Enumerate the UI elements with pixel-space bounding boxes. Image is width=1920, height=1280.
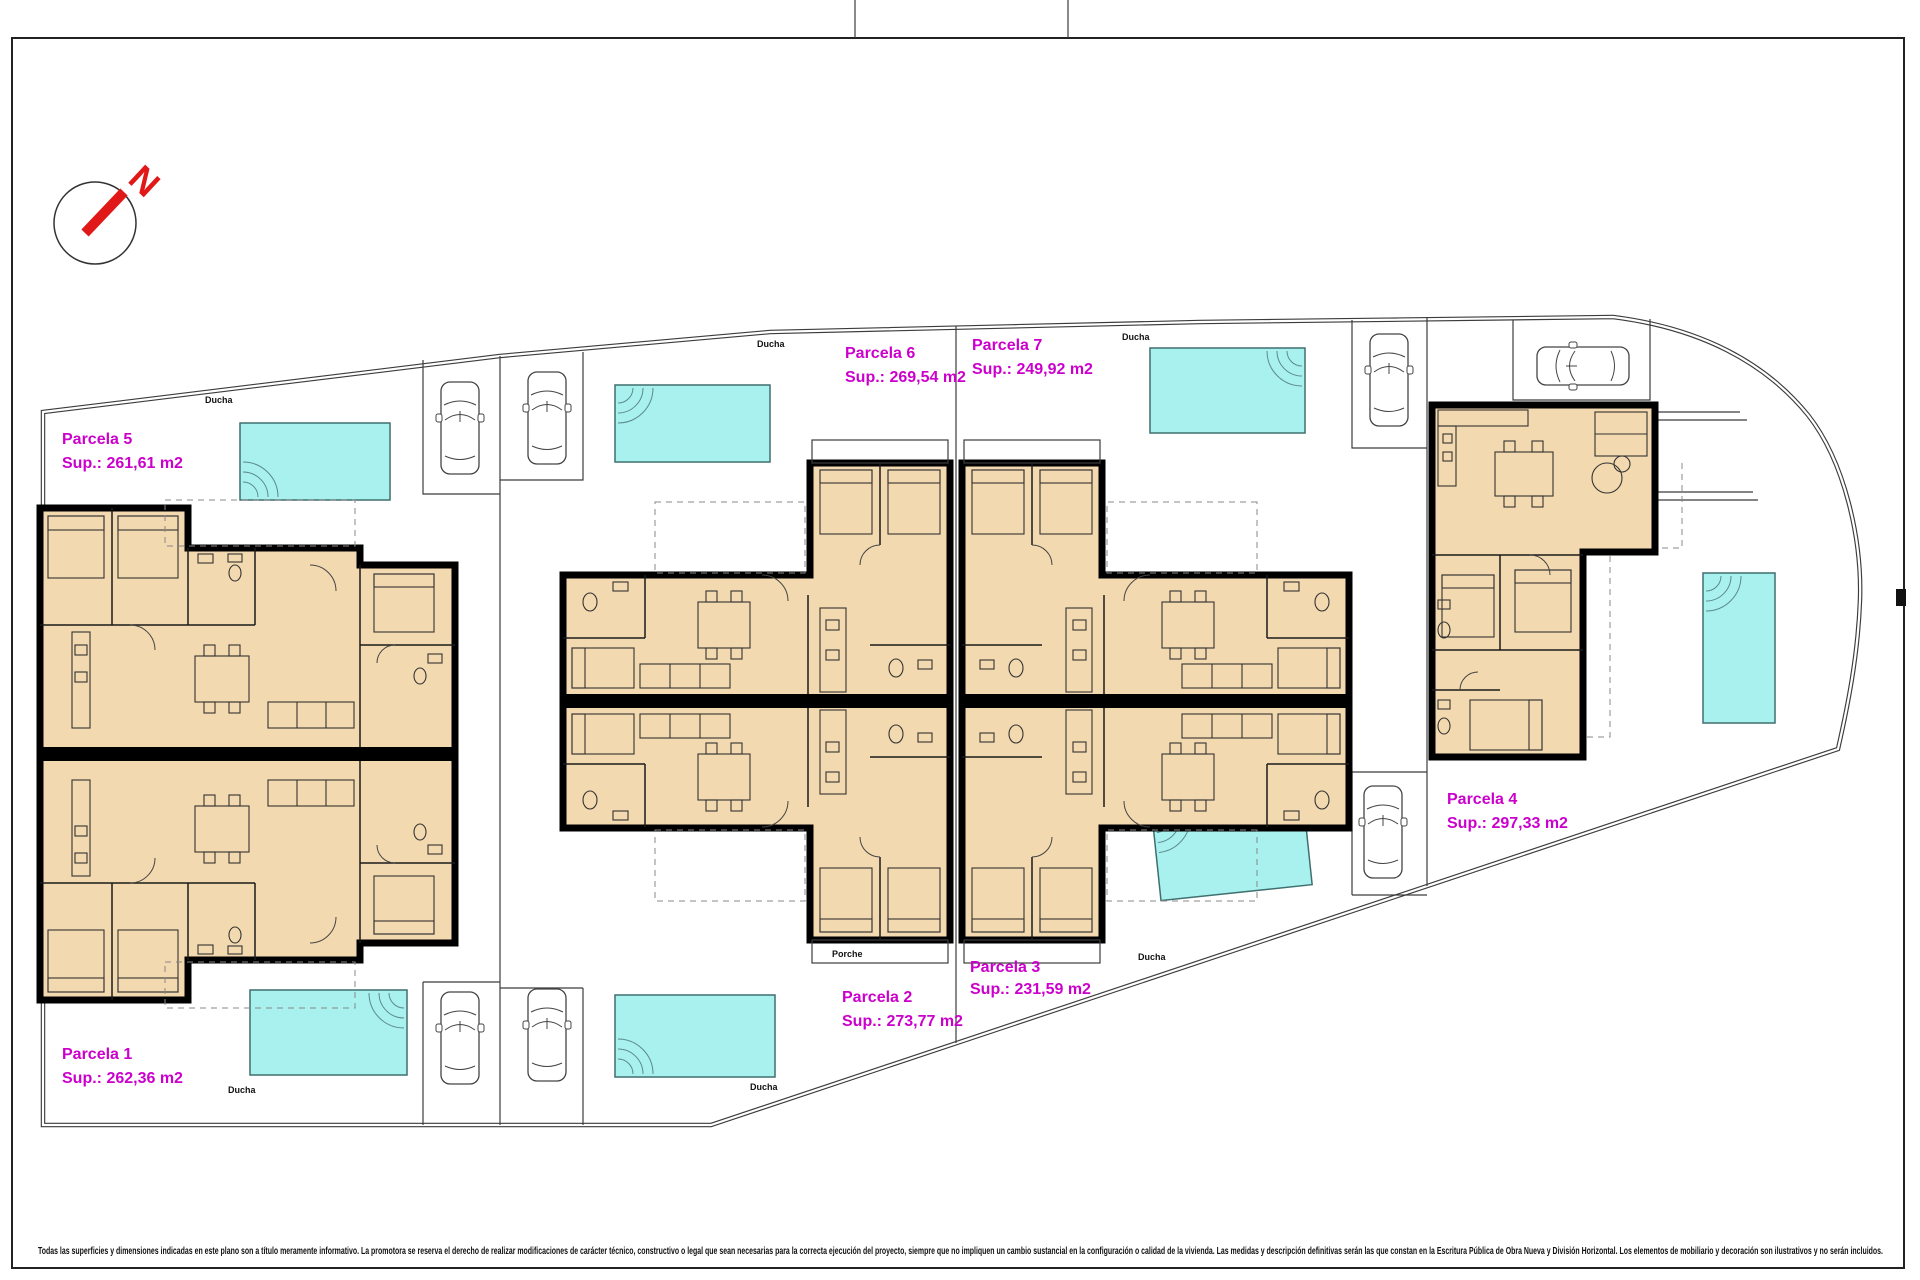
site-plan-drawing: N bbox=[0, 0, 1920, 1280]
porche-label: Porche bbox=[832, 949, 863, 959]
building-parcelas-5-1 bbox=[40, 500, 455, 1008]
north-arrow-bar-icon bbox=[85, 192, 124, 233]
building-parcela-4 bbox=[1432, 405, 1655, 757]
parcela-2-label: Parcela 2 Sup.: 273,77 m2 bbox=[842, 989, 963, 1030]
border-mark bbox=[1896, 589, 1906, 606]
ducha-label: Ducha bbox=[228, 1085, 257, 1095]
north-arrow: N bbox=[54, 157, 168, 264]
building-parcelas-6-2 bbox=[563, 440, 950, 963]
car-icon bbox=[523, 989, 571, 1081]
ducha-label: Ducha bbox=[757, 339, 786, 349]
parcela-4-label: Parcela 4 Sup.: 297,33 m2 bbox=[1447, 791, 1568, 832]
svg-text:Sup.: 261,61 m2: Sup.: 261,61 m2 bbox=[62, 455, 183, 472]
svg-text:Parcela 4: Parcela 4 bbox=[1447, 791, 1517, 808]
pool-parcela-5 bbox=[240, 423, 390, 500]
ducha-label: Ducha bbox=[750, 1082, 779, 1092]
pool-parcela-7 bbox=[1150, 348, 1305, 433]
pool-parcela-1 bbox=[250, 990, 407, 1075]
pool-parcela-4 bbox=[1703, 573, 1775, 723]
parcela-6-label: Parcela 6 Sup.: 269,54 m2 bbox=[845, 345, 966, 386]
ducha-label: Ducha bbox=[1122, 332, 1151, 342]
site-plan-page: N bbox=[0, 0, 1920, 1280]
parcela-1-label: Parcela 1 Sup.: 262,36 m2 bbox=[62, 1046, 183, 1087]
car-icon bbox=[1537, 342, 1629, 390]
car-icon bbox=[1359, 786, 1407, 878]
building-footprint bbox=[1432, 405, 1655, 757]
car-icon bbox=[436, 382, 484, 474]
car-icon bbox=[1365, 334, 1413, 426]
ducha-label: Ducha bbox=[1138, 952, 1167, 962]
disclaimer-text: Todas las superficies y dimensiones indi… bbox=[38, 1245, 1883, 1257]
parcela-5-label: Parcela 5 Sup.: 261,61 m2 bbox=[62, 431, 183, 472]
svg-text:Sup.: 269,54 m2: Sup.: 269,54 m2 bbox=[845, 369, 966, 386]
parcela-7-label: Parcela 7 Sup.: 249,92 m2 bbox=[972, 337, 1093, 378]
ducha-label: Ducha bbox=[205, 395, 234, 405]
svg-text:Sup.: 262,36 m2: Sup.: 262,36 m2 bbox=[62, 1070, 183, 1087]
pool-parcela-2 bbox=[615, 995, 775, 1077]
svg-text:Sup.: 249,92 m2: Sup.: 249,92 m2 bbox=[972, 361, 1093, 378]
svg-text:Parcela 7: Parcela 7 bbox=[972, 337, 1042, 354]
svg-text:Parcela 3: Parcela 3 bbox=[970, 959, 1040, 976]
svg-text:Sup.: 231,59 m2: Sup.: 231,59 m2 bbox=[970, 981, 1091, 998]
pool-parcela-6 bbox=[615, 385, 770, 462]
svg-text:Parcela 5: Parcela 5 bbox=[62, 431, 132, 448]
car-icon bbox=[436, 992, 484, 1084]
svg-text:Sup.: 297,33 m2: Sup.: 297,33 m2 bbox=[1447, 815, 1568, 832]
svg-text:Parcela 1: Parcela 1 bbox=[62, 1046, 132, 1063]
svg-text:Parcela 2: Parcela 2 bbox=[842, 989, 912, 1006]
svg-text:Parcela 6: Parcela 6 bbox=[845, 345, 915, 362]
svg-text:Sup.: 273,77 m2: Sup.: 273,77 m2 bbox=[842, 1013, 963, 1030]
car-icon bbox=[523, 372, 571, 464]
parcela-3-label: Parcela 3 Sup.: 231,59 m2 bbox=[970, 959, 1091, 998]
